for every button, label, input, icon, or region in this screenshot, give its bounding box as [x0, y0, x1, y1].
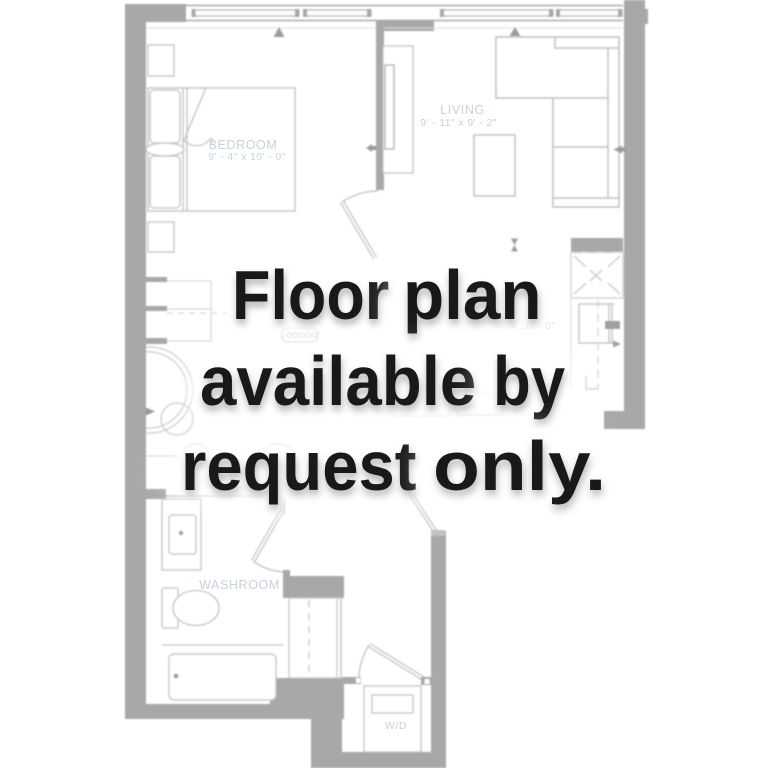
svg-text:LIVING: LIVING — [440, 103, 485, 117]
svg-text:BEDROOM: BEDROOM — [209, 138, 278, 152]
svg-text:WASHROOM: WASHROOM — [199, 578, 280, 592]
svg-text:9' - 4" x 10' - 0": 9' - 4" x 10' - 0" — [208, 151, 286, 163]
svg-text:W/D: W/D — [385, 720, 407, 732]
svg-text:9' - 11" x 9' - 2": 9' - 11" x 9' - 2" — [420, 117, 497, 129]
